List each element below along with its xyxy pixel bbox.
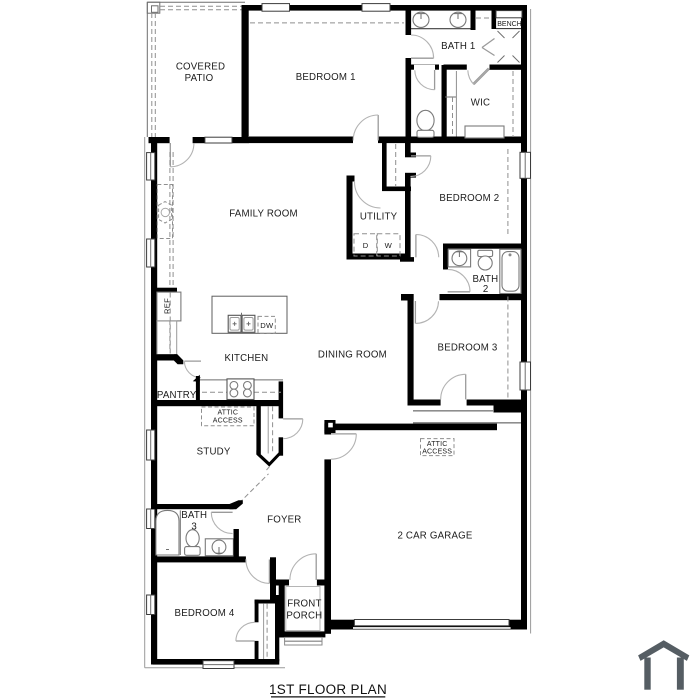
svg-text:D: D [363, 241, 369, 250]
svg-text:COVERED: COVERED [176, 62, 225, 73]
svg-text:BEDROOM 4: BEDROOM 4 [175, 608, 235, 619]
svg-text:FAMILY ROOM: FAMILY ROOM [229, 209, 298, 220]
svg-text:ATTIC: ATTIC [217, 410, 238, 417]
svg-text:STUDY: STUDY [197, 446, 231, 457]
svg-text:2 CAR GARAGE: 2 CAR GARAGE [397, 531, 472, 542]
svg-text:ACCESS: ACCESS [422, 449, 452, 456]
svg-text:2: 2 [483, 284, 489, 295]
svg-text:FRONT: FRONT [287, 599, 321, 610]
svg-text:BENCH: BENCH [497, 21, 522, 28]
svg-text:DINING ROOM: DINING ROOM [318, 350, 387, 361]
svg-text:W: W [385, 241, 393, 250]
svg-text:BATH: BATH [181, 510, 207, 521]
svg-text:WIC: WIC [471, 98, 490, 109]
svg-text:BATH 1: BATH 1 [441, 41, 475, 52]
svg-text:KITCHEN: KITCHEN [224, 353, 268, 364]
svg-text:BEDROOM 1: BEDROOM 1 [296, 72, 356, 83]
svg-text:BEDROOM 3: BEDROOM 3 [438, 343, 498, 354]
svg-text:ACCESS: ACCESS [213, 418, 243, 425]
svg-text:PANTRY: PANTRY [157, 390, 197, 401]
svg-text:1ST FLOOR PLAN: 1ST FLOOR PLAN [269, 682, 387, 697]
svg-text:ATTIC: ATTIC [427, 441, 448, 448]
svg-text:PORCH: PORCH [286, 611, 322, 622]
svg-text:PATIO: PATIO [185, 73, 214, 84]
svg-text:UTILITY: UTILITY [360, 211, 398, 222]
svg-text:DW: DW [260, 321, 274, 330]
svg-text:BEDROOM 2: BEDROOM 2 [439, 193, 499, 204]
svg-text:FOYER: FOYER [267, 515, 301, 526]
